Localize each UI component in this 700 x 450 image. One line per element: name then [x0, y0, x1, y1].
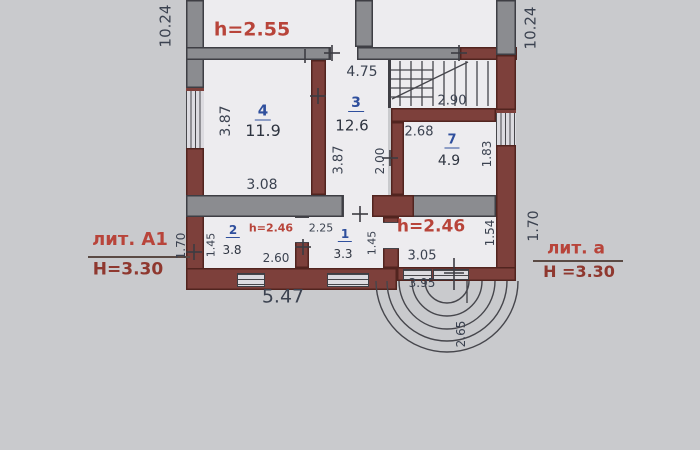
- dim-room1-right: 1.45: [367, 231, 378, 256]
- room-2-area: 3.8: [222, 244, 241, 256]
- left-block-lit: лит. А1: [92, 231, 168, 249]
- dim-bottom-total: 5.47: [262, 288, 304, 307]
- height-room2: h=2.46: [249, 223, 293, 234]
- dim-stairs-width: 2.90: [438, 95, 467, 108]
- room-1-number: 1: [338, 228, 352, 242]
- dim-room4-depth: 3.87: [219, 105, 233, 136]
- dim-steps-depth: 2.65: [455, 321, 467, 348]
- dim-veranda-inner: 3.05: [408, 250, 437, 263]
- room-3-area: 12.6: [335, 119, 368, 134]
- floor-plan-page: 10.24 h=2.55 10.24 4.75 2.90 4 11.9 3.87…: [0, 0, 700, 450]
- room-2-number: 2: [226, 224, 240, 238]
- dim-veranda-right: 1.54: [484, 220, 496, 247]
- room-4-area: 11.9: [245, 123, 281, 139]
- room-1-area: 3.3: [333, 248, 352, 260]
- dim-room4-width: 3.08: [246, 178, 277, 192]
- dim-left-offset: 1.70: [175, 233, 187, 260]
- left-block-height: Н=3.30: [93, 262, 163, 279]
- dim-veranda-outer: 3.95: [409, 277, 436, 289]
- room-4-number: 4: [255, 104, 271, 121]
- room-7-number: 7: [444, 134, 459, 149]
- right-block-height: Н =3.30: [543, 264, 615, 280]
- room-7-area: 4.9: [438, 154, 460, 168]
- height-upper-room: h=2.55: [214, 21, 290, 40]
- dim-room3-left: 3.87: [333, 146, 346, 175]
- dim-left-total: 10.24: [159, 5, 174, 48]
- dim-room3-top: 4.75: [346, 65, 377, 79]
- dim-room1-top: 2.25: [309, 223, 334, 234]
- dim-room7-right: 1.83: [481, 141, 493, 168]
- height-veranda: h=2.46: [397, 219, 465, 236]
- dim-room2-bottom: 2.60: [263, 252, 290, 264]
- dim-room3-right: 2.00: [374, 148, 386, 175]
- dim-right-total: 10.24: [524, 7, 539, 50]
- entrance-steps-arcs: [376, 281, 518, 352]
- room-3-number: 3: [348, 96, 364, 112]
- dim-room2-left: 1.45: [206, 233, 217, 258]
- dim-right-offset: 1.70: [527, 210, 541, 241]
- right-block-lit: лит. а: [547, 241, 605, 258]
- dim-room7-top: 2.68: [405, 126, 434, 139]
